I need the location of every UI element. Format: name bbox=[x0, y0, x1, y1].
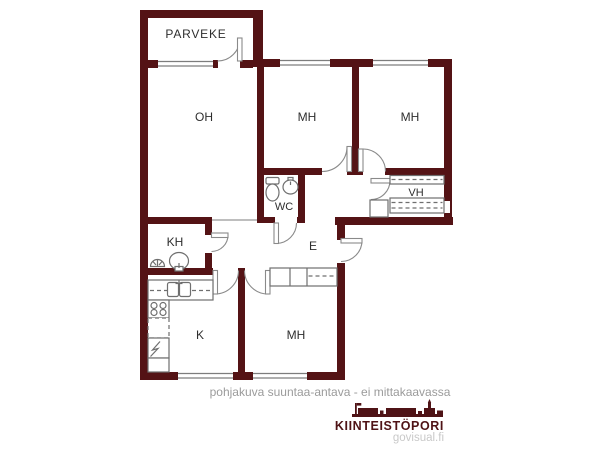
bedroom2-door bbox=[359, 149, 386, 172]
wall bbox=[335, 217, 453, 225]
window bbox=[178, 372, 233, 380]
wall bbox=[337, 263, 345, 380]
shower-drain-icon bbox=[151, 260, 165, 267]
stove-icon bbox=[148, 300, 169, 318]
kitchen-sink-icon bbox=[168, 280, 191, 297]
room-label-mh-top-left: MH bbox=[298, 110, 317, 124]
window bbox=[158, 60, 213, 68]
bathroom-door bbox=[212, 233, 229, 252]
doors bbox=[212, 38, 391, 294]
disclaimer-text: pohjakuva suuntaa-antava - ei mittakaava… bbox=[210, 385, 451, 399]
wardrobe-icon bbox=[270, 268, 337, 286]
room-label-mh-top-right: MH bbox=[401, 110, 420, 124]
wall bbox=[140, 10, 263, 18]
floorplan-drawing: PARVEKE OH MH MH VH WC KH E K MH pohjaku… bbox=[0, 0, 600, 450]
wall bbox=[205, 253, 212, 268]
room-label-e: E bbox=[309, 239, 317, 253]
logo-brand-text: KIINTEISTÖPORI bbox=[335, 418, 444, 433]
room-label-kh: KH bbox=[167, 235, 184, 249]
logo: KIINTEISTÖPORI govisual.fi bbox=[335, 399, 444, 444]
wall bbox=[298, 168, 305, 217]
wall bbox=[213, 60, 218, 68]
bedroom1-door bbox=[322, 147, 352, 172]
wc-door bbox=[274, 223, 297, 244]
room-label-parveke: PARVEKE bbox=[165, 27, 226, 41]
wall bbox=[264, 168, 322, 175]
wall bbox=[257, 217, 275, 223]
wall bbox=[337, 225, 345, 240]
cabinet bbox=[148, 358, 169, 372]
closet-door bbox=[371, 179, 390, 200]
room-label-mh-bottom: MH bbox=[287, 328, 306, 342]
balcony-door bbox=[218, 38, 243, 61]
room-label-oh: OH bbox=[195, 110, 213, 124]
wall bbox=[140, 60, 148, 380]
wall bbox=[140, 18, 148, 60]
wall bbox=[253, 18, 263, 60]
room-label-k: K bbox=[196, 328, 204, 342]
wall bbox=[253, 59, 280, 67]
wall bbox=[444, 59, 452, 225]
wall bbox=[330, 59, 373, 67]
bedroom3-door bbox=[245, 271, 271, 295]
wall bbox=[233, 372, 253, 380]
window bbox=[280, 59, 330, 67]
wall bbox=[257, 67, 264, 223]
wall bbox=[148, 217, 212, 224]
window bbox=[373, 59, 428, 67]
wall bbox=[238, 268, 245, 372]
wc-sink-icon bbox=[283, 178, 298, 195]
wall bbox=[205, 217, 212, 235]
room-label-vh: VH bbox=[408, 187, 423, 199]
fridge-icon bbox=[148, 338, 169, 358]
toilet-icon bbox=[266, 178, 279, 202]
kitchen-door bbox=[213, 271, 239, 295]
room-label-wc: WC bbox=[275, 201, 293, 213]
wall bbox=[140, 372, 178, 380]
entrance-door bbox=[341, 239, 362, 262]
wall bbox=[385, 168, 444, 175]
window bbox=[253, 372, 307, 380]
wall bbox=[297, 217, 305, 223]
floorplan-page: PARVEKE OH MH MH VH WC KH E K MH pohjaku… bbox=[0, 0, 600, 450]
logo-site-text: govisual.fi bbox=[393, 432, 444, 444]
logo-skyline-icon bbox=[352, 399, 443, 417]
worktop-reservation bbox=[148, 318, 169, 338]
